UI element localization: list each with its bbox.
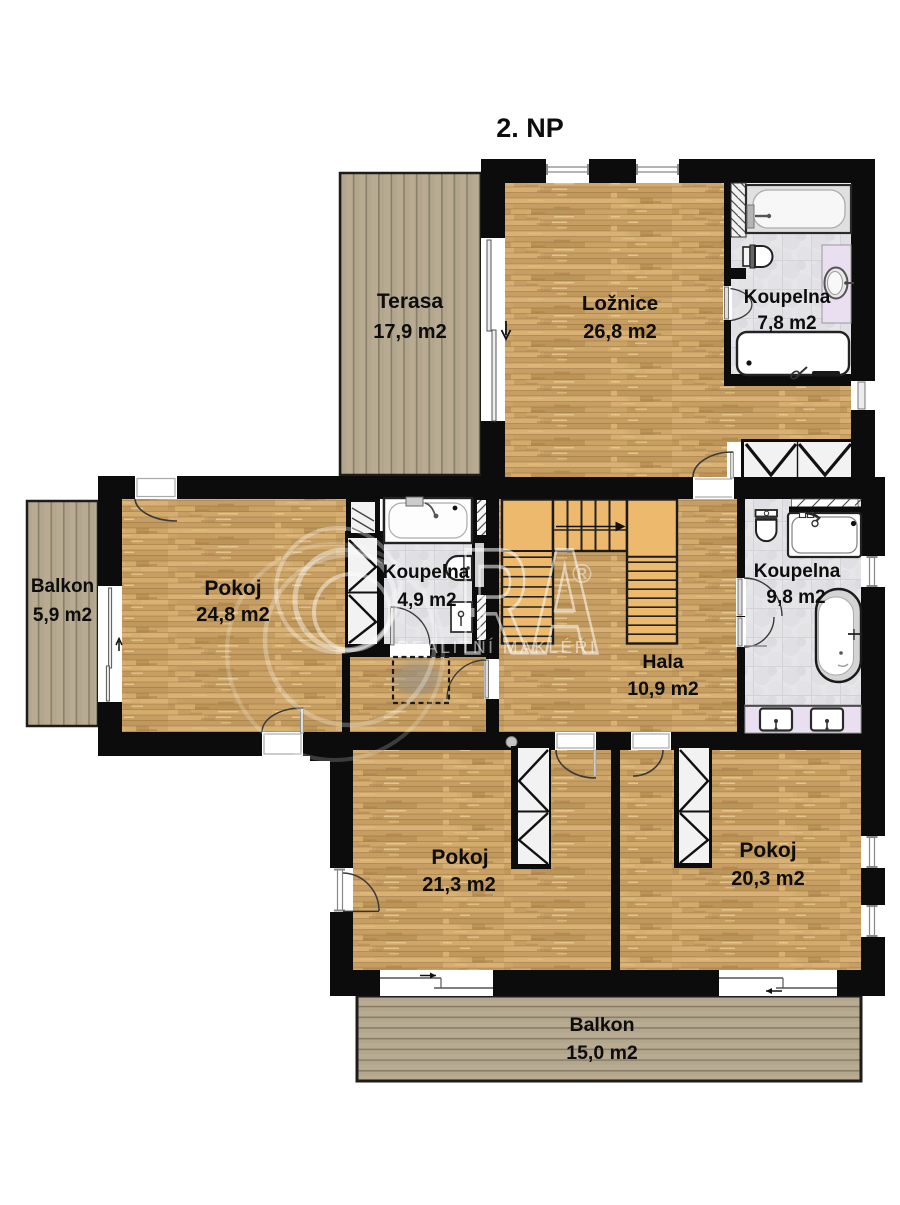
svg-text:Koupelna: Koupelna — [744, 287, 831, 308]
svg-text:26,8 m2: 26,8 m2 — [583, 321, 656, 343]
svg-text:4,9 m2: 4,9 m2 — [397, 590, 456, 611]
svg-text:Terasa: Terasa — [377, 290, 443, 313]
svg-text:Pokoj: Pokoj — [204, 577, 261, 600]
svg-text:Balkon: Balkon — [31, 576, 94, 597]
svg-text:REALITNÍ MAKLÉŘI: REALITNÍ MAKLÉŘI — [397, 637, 597, 657]
svg-text:2. NP: 2. NP — [496, 113, 564, 143]
svg-text:Hala: Hala — [642, 651, 683, 673]
svg-text:15,0 m2: 15,0 m2 — [566, 1042, 638, 1064]
svg-text:Koupelna: Koupelna — [754, 561, 841, 582]
svg-text:RA: RA — [459, 517, 600, 685]
svg-text:®: ® — [572, 559, 592, 589]
svg-text:5,9 m2: 5,9 m2 — [33, 605, 92, 626]
svg-text:17,9 m2: 17,9 m2 — [373, 321, 446, 343]
svg-text:9,8 m2: 9,8 m2 — [766, 587, 825, 608]
svg-text:Pokoj: Pokoj — [431, 846, 488, 869]
svg-text:20,3 m2: 20,3 m2 — [731, 868, 804, 890]
svg-text:Balkon: Balkon — [569, 1014, 634, 1036]
svg-text:7,8 m2: 7,8 m2 — [757, 313, 816, 334]
svg-text:Pokoj: Pokoj — [739, 839, 796, 862]
svg-text:Ložnice: Ložnice — [582, 292, 658, 315]
svg-text:10,9 m2: 10,9 m2 — [627, 678, 699, 700]
svg-text:24,8 m2: 24,8 m2 — [196, 604, 269, 626]
svg-text:Koupelna: Koupelna — [383, 562, 470, 583]
svg-text:21,3 m2: 21,3 m2 — [422, 874, 495, 896]
